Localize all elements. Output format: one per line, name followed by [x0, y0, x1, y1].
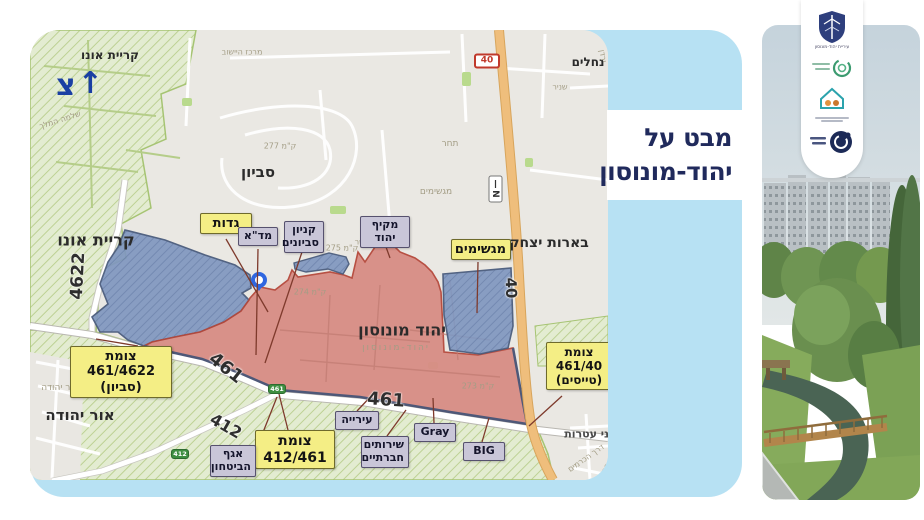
- gray-callout: עירייה: [335, 411, 379, 430]
- map-label: 461: [367, 388, 406, 412]
- map-label: ק"מ 274: [294, 288, 327, 297]
- green-swirl-icon: [812, 57, 852, 79]
- map-label: ק"מ 273: [462, 382, 495, 391]
- map-label: מגשימים: [420, 187, 452, 197]
- yellow-callout: מגשימים: [451, 239, 511, 260]
- gray-callout: מקיף יהוד: [360, 216, 410, 248]
- city-emblem-logo: עיריית יהוד-מונוסון: [815, 10, 850, 50]
- page-title-line1: מבט על: [644, 121, 732, 155]
- city-emblem-caption: עיריית יהוד-מונוסון: [815, 45, 850, 50]
- gray-callout: BIG: [463, 442, 505, 461]
- map-label: ק"מ 275: [326, 244, 359, 253]
- map-label: קריית אונו: [57, 231, 134, 250]
- road-shield-461: 461: [268, 384, 286, 394]
- map-label: מרכז היישוב: [222, 48, 263, 57]
- title-box: מבט על יהוד-מונוסון: [607, 110, 742, 200]
- map-label: אור יהודה: [45, 406, 114, 424]
- map-label: ירדן: [597, 49, 608, 63]
- road-shield-412: 412: [171, 449, 189, 459]
- logo-caption-bar: [821, 120, 843, 122]
- gray-callout: Gray: [414, 423, 456, 442]
- city-map: N קריית אונוסביוןקריית אונואור יהודהבארו…: [30, 30, 608, 480]
- map-label: 4622: [67, 252, 89, 300]
- gray-callout: קניוןסביונים: [284, 221, 324, 253]
- green-circular-logo: [812, 57, 852, 79]
- map-overlay: קריית אונוסביוןקריית אונואור יהודהבארות …: [30, 30, 608, 480]
- map-label: בני עטרות: [564, 428, 608, 441]
- map-label: שלמה המלך: [38, 109, 82, 131]
- yellow-callout: צומת 461/4622(סביון): [70, 346, 172, 398]
- north-arrow-icon: ↑: [78, 66, 103, 101]
- map-label: יהוד מונוסון: [358, 321, 446, 340]
- map-label: תחר: [442, 139, 459, 149]
- page-title-line2: יהוד-מונוסון: [599, 155, 732, 189]
- navy-circle-icon: [810, 129, 854, 155]
- north-letter: צ: [56, 68, 76, 103]
- map-label: סביון: [241, 163, 275, 181]
- road-shield-40: 40: [474, 54, 500, 69]
- map-label: קריית אונו: [81, 48, 139, 62]
- city-emblem-shield-icon: [817, 10, 847, 44]
- house-community-logo: [815, 86, 849, 122]
- navy-circle-logo: [810, 129, 854, 155]
- house-icon: [817, 86, 847, 116]
- yellow-callout: צומת461/40(טייסים): [546, 342, 608, 390]
- gray-callout: מד"א: [238, 227, 278, 246]
- yellow-callout: צומת412/461: [255, 430, 335, 469]
- logo-caption-bar: [815, 117, 849, 119]
- map-label: שניר: [552, 83, 567, 92]
- north-indicator: צ↑: [56, 68, 103, 103]
- map-label: 461: [205, 348, 248, 388]
- map-label: 40: [502, 277, 521, 298]
- logo-pill: עיריית יהוד-מונוסון: [801, 0, 863, 178]
- gray-callout: שירותיםחברתיים: [361, 436, 409, 468]
- gray-callout: אגףהביטחון: [210, 445, 256, 477]
- map-label: 412: [207, 409, 245, 442]
- infographic-slide: N קריית אונוסביוןקריית אונואור יהודהבארו…: [0, 0, 924, 520]
- map-label: ק"מ 277: [264, 142, 297, 151]
- map-label: יהוד-מונוסון: [362, 343, 430, 353]
- map-label: בארות יצחק: [509, 235, 589, 251]
